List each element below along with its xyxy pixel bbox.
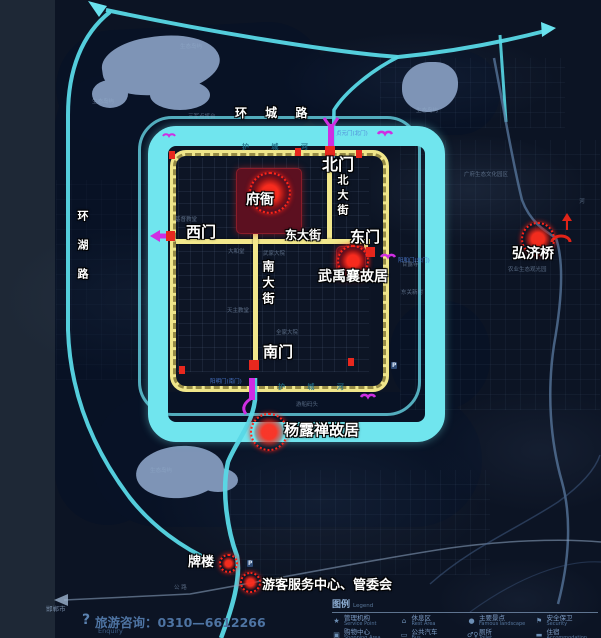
island-north-lobe bbox=[150, 80, 210, 110]
street-label-north-st: 北大街 bbox=[334, 174, 350, 219]
poi-marker-pailou bbox=[219, 554, 238, 573]
famous-landscape-icon: ● bbox=[467, 617, 476, 625]
poi-label-pailou: 牌楼 bbox=[188, 551, 214, 570]
poi-label-wu-yuxiang: 武禹襄故居 bbox=[318, 266, 388, 286]
legend-panel: 图例Legend ★ 管理机构Service Point ⌂ 休息区Rest A… bbox=[332, 592, 598, 636]
poi-marker-visitor-center bbox=[240, 572, 261, 593]
moat-label-bottom: 护 城 河 bbox=[278, 382, 354, 392]
question-mark-icon: ? bbox=[82, 612, 90, 628]
gate-label-west: 西门 bbox=[186, 221, 216, 242]
hotline-text-en: Enquiry bbox=[98, 627, 123, 635]
gate-name-north: 贞元门(北门) bbox=[336, 129, 368, 137]
poi-label-visitor-center: 游客服务中心、管委会 bbox=[262, 574, 392, 593]
label-boat-dock: 游船码头 bbox=[296, 400, 318, 408]
lake-road-label: 环湖路 bbox=[74, 210, 90, 297]
label-dahetang: 大和堂 bbox=[228, 247, 245, 255]
legend-title: 图例 bbox=[332, 600, 350, 610]
island-south-lobe bbox=[198, 468, 238, 492]
poi-label-fuya: 府衙 bbox=[246, 189, 274, 209]
label-wujia-courtyard: 武家大院 bbox=[263, 249, 285, 257]
label-sanjun-platform: 三军点将台 bbox=[188, 112, 216, 120]
label-dongguan-village: 东关新村 bbox=[401, 288, 423, 296]
label-handan-direction: 邯郸市 bbox=[46, 603, 66, 613]
moat-label-top: 护 城 河 bbox=[242, 142, 318, 152]
gate-label-north: 北门 bbox=[322, 151, 354, 175]
label-eco-culture-park: 广府生态文化园区 bbox=[464, 170, 508, 178]
service-point-icon: ★ bbox=[332, 617, 341, 625]
rest-area-icon: ⌂ bbox=[400, 617, 409, 625]
gate-name-south: 阳明门(南门) bbox=[210, 377, 242, 385]
label-highway: 公 路 bbox=[174, 583, 187, 591]
legend-title-row: 图例Legend bbox=[332, 592, 598, 611]
bus-icon: ▭ bbox=[400, 631, 409, 638]
security-icon: ⚑ bbox=[535, 617, 544, 625]
label-eco-island-1: 生态岛屿 bbox=[180, 42, 202, 50]
label-quanjia-courtyard: 全家大院 bbox=[276, 328, 298, 336]
street-label-east-st: 东大街 bbox=[285, 226, 321, 243]
legend-en: Rest Area bbox=[412, 622, 436, 628]
legend-items: ★ 管理机构Service Point ⌂ 休息区Rest Area ● 主要景… bbox=[332, 615, 598, 638]
label-river: 河 bbox=[577, 198, 585, 204]
poi-label-hongji-bridge: 弘济桥 bbox=[512, 243, 554, 263]
gate-label-east: 东门 bbox=[350, 226, 380, 247]
accommodation-icon: ▬ bbox=[535, 631, 544, 638]
gate-label-south: 南门 bbox=[263, 341, 293, 362]
street-label-south-st: 南大街 bbox=[260, 260, 277, 308]
legend-item-famous-landscape: ● 主要景点Famous landscape bbox=[467, 615, 531, 627]
arrow-top-right bbox=[541, 22, 556, 37]
left-margin-strip bbox=[0, 0, 55, 638]
legend-item-security: ⚑ 安全保卫Security bbox=[535, 615, 599, 627]
label-eco-island-3: 生态岛屿 bbox=[416, 106, 438, 114]
poi-label-yang-luchan: 杨露禅故居 bbox=[284, 419, 359, 440]
legend-title-en: Legend bbox=[353, 603, 373, 609]
label-ganlu-temple: 甘露寺 bbox=[402, 260, 419, 268]
label-catholic-church: 天主教堂 bbox=[227, 306, 249, 314]
street-south-st bbox=[253, 230, 258, 368]
poi-marker-yang-luchan bbox=[250, 413, 288, 451]
suburb-grid-west bbox=[56, 180, 146, 380]
ring-road-label: 环 城 路 bbox=[235, 104, 314, 121]
legend-en: Service Point bbox=[344, 622, 376, 628]
legend-en: Famous landscape bbox=[479, 622, 525, 628]
arrow-top-left bbox=[88, 1, 107, 17]
legend-en: Security bbox=[547, 622, 573, 628]
guangfu-tourist-map: 环 城 路 环湖路 北门 西门 东门 南门 北大街 东大街 南大街 府衙 武禹襄… bbox=[0, 0, 601, 638]
parking-icon-southeast: P bbox=[391, 362, 397, 369]
legend-divider bbox=[332, 612, 598, 613]
suburb-grid-south bbox=[230, 470, 490, 575]
toilet-icon: ♂♀ bbox=[467, 631, 476, 638]
parking-icon-pailou: P bbox=[247, 560, 253, 567]
legend-item-rest-area: ⌂ 休息区Rest Area bbox=[400, 615, 464, 627]
label-eco-island-4: 生态岛屿 bbox=[150, 466, 172, 474]
legend-item-service-point: ★ 管理机构Service Point bbox=[332, 615, 396, 627]
legend-item-shopping-area: ▣ 购物中心Shopping Area bbox=[332, 629, 396, 638]
legend-item-bus: ▭ 公共汽车Bus bbox=[400, 629, 464, 638]
legend-item-toilet: ♂♀ 厕所Toilet bbox=[467, 629, 531, 638]
shopping-area-icon: ▣ bbox=[332, 631, 341, 638]
label-agri-park: 农业生态观光园 bbox=[508, 265, 547, 273]
label-eco-island-2: 生态岛屿 bbox=[92, 97, 114, 105]
label-christian-church: 基督教堂 bbox=[175, 215, 197, 223]
legend-item-accommodation: ▬ 住宿Accommodation bbox=[535, 629, 599, 638]
